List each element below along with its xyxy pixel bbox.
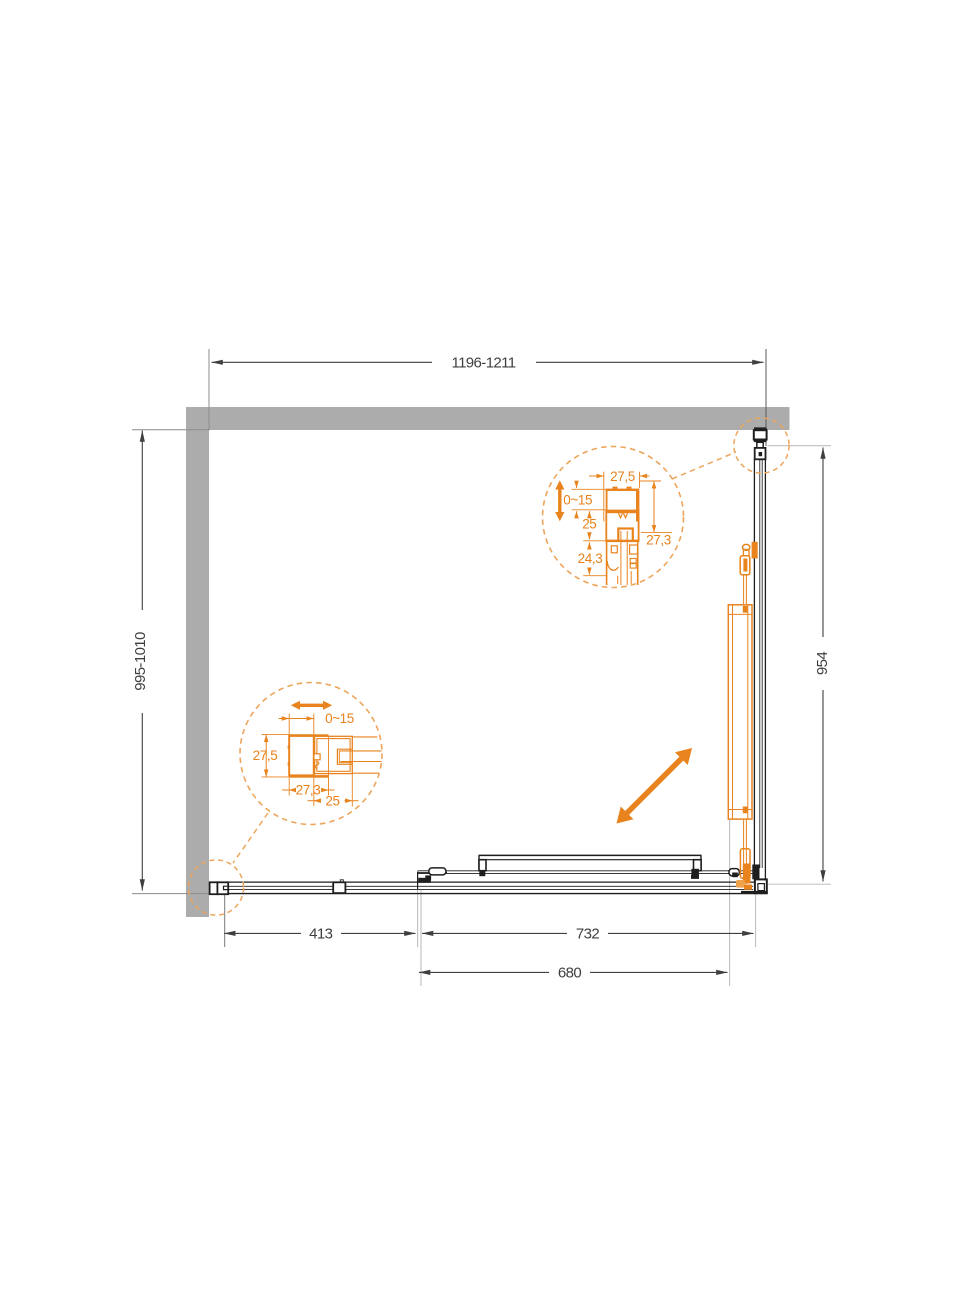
svg-text:1196-1211: 1196-1211 bbox=[451, 355, 515, 372]
svg-text:25: 25 bbox=[325, 793, 339, 808]
svg-text:27,5: 27,5 bbox=[610, 469, 635, 484]
svg-text:995-1010: 995-1010 bbox=[132, 632, 149, 691]
svg-text:413: 413 bbox=[309, 926, 332, 943]
svg-text:27,3: 27,3 bbox=[296, 783, 321, 798]
svg-text:954: 954 bbox=[814, 652, 831, 675]
svg-text:25: 25 bbox=[582, 517, 596, 532]
svg-text:27,3: 27,3 bbox=[646, 533, 671, 548]
svg-text:0~15: 0~15 bbox=[563, 493, 592, 508]
svg-text:680: 680 bbox=[558, 965, 581, 982]
svg-text:24,3: 24,3 bbox=[578, 551, 603, 566]
svg-text:27,5: 27,5 bbox=[253, 748, 278, 763]
svg-text:732: 732 bbox=[576, 926, 599, 943]
svg-text:0~15: 0~15 bbox=[325, 711, 354, 726]
